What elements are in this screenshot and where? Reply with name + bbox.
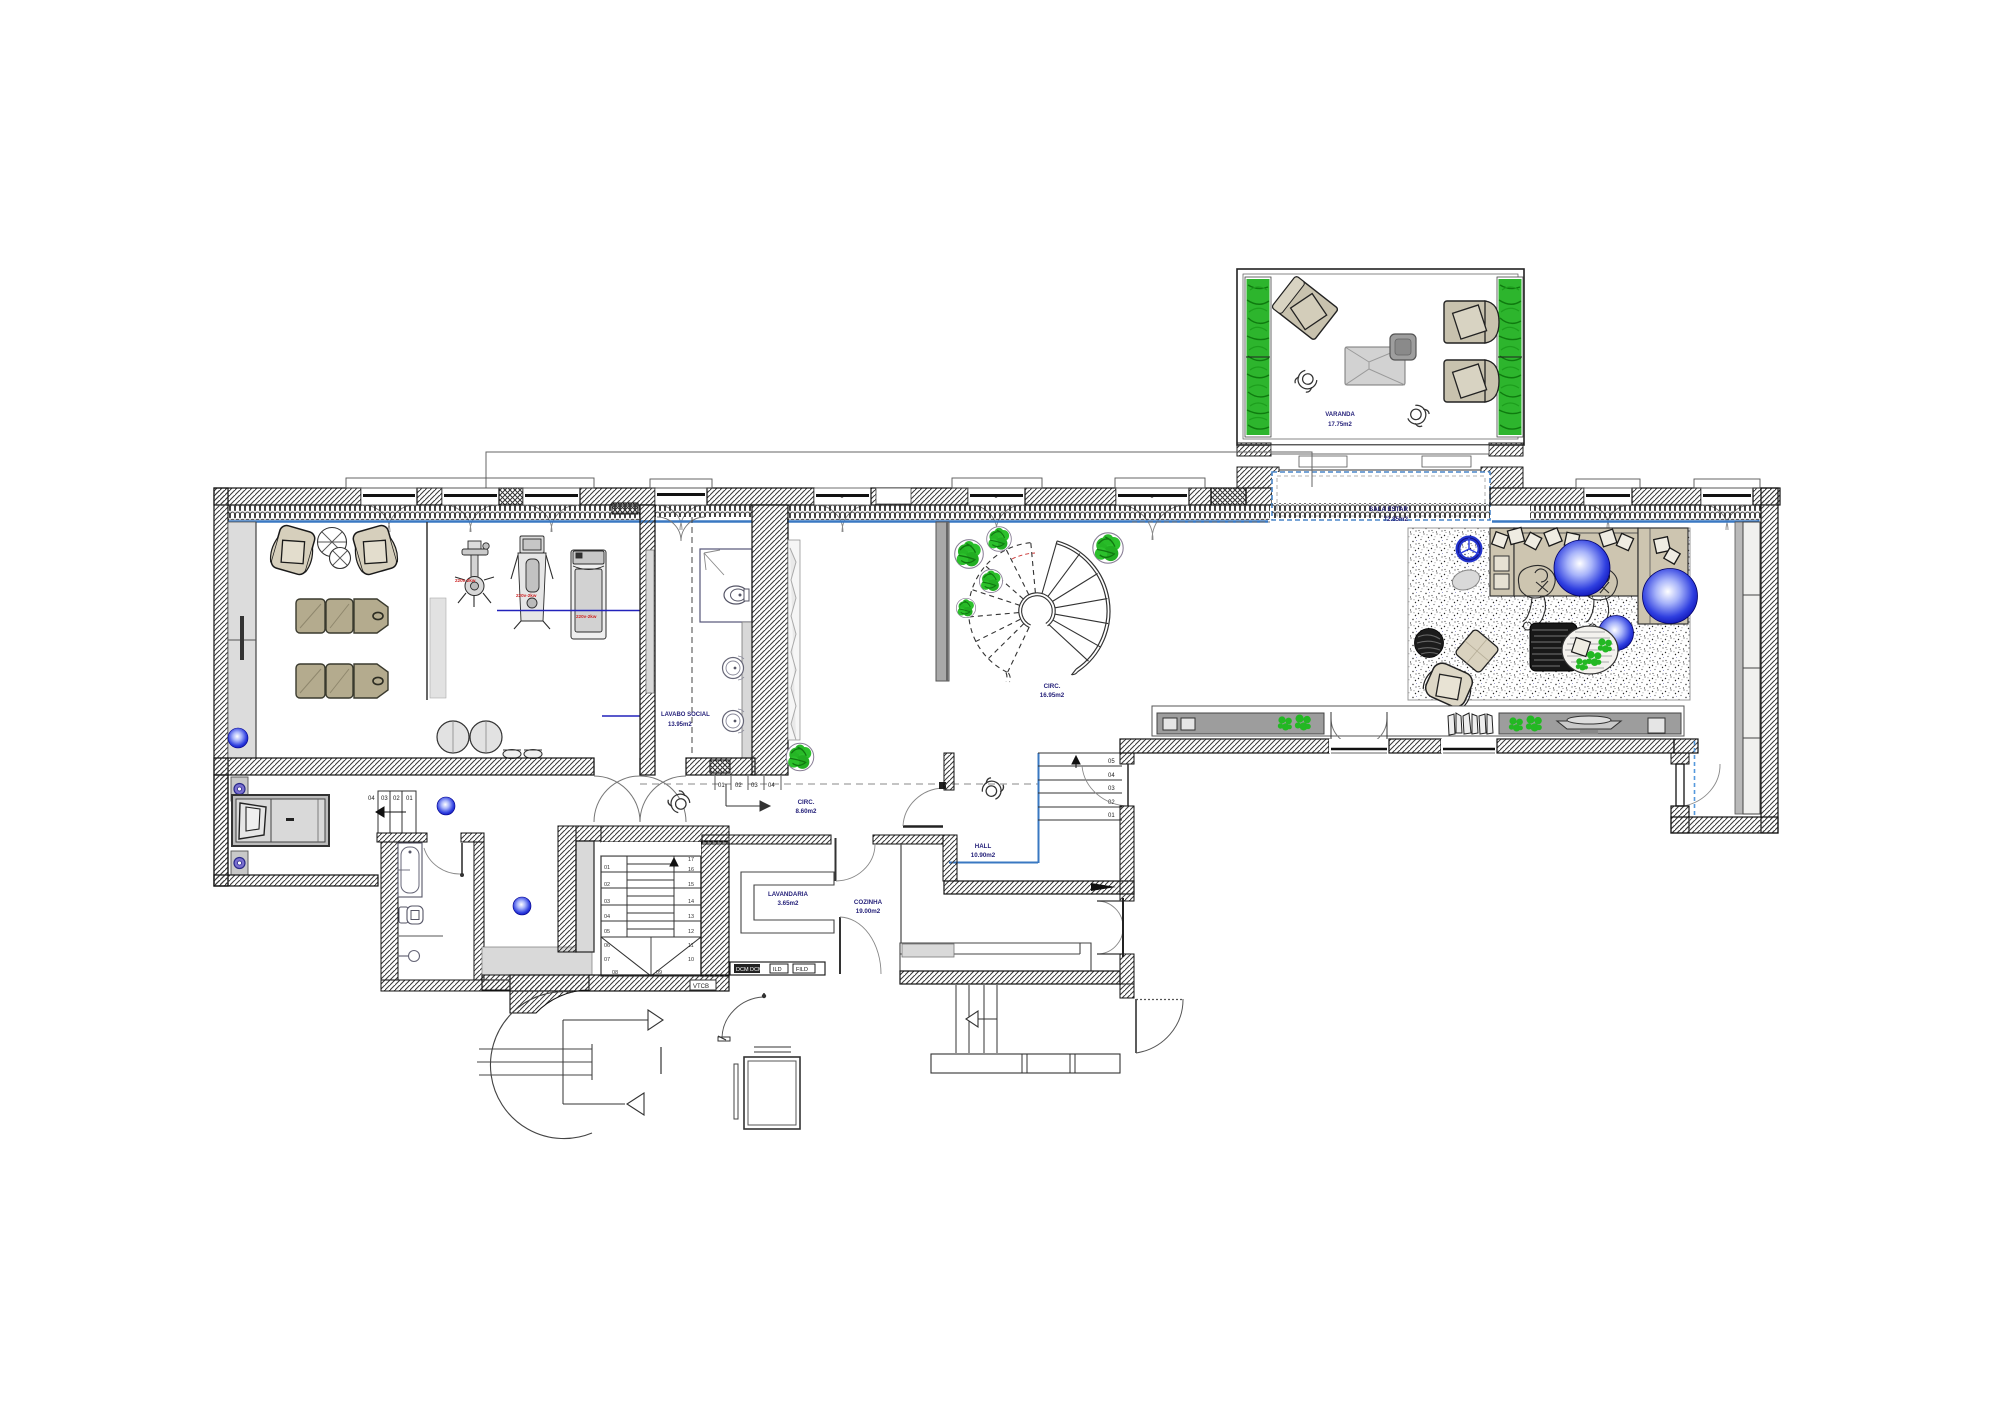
svg-text:04: 04: [604, 914, 610, 920]
svg-text:VARANDA: VARANDA: [1325, 412, 1355, 418]
svg-text:11: 11: [688, 943, 694, 949]
svg-text:FILD: FILD: [796, 967, 808, 973]
svg-text:17.75m2: 17.75m2: [1328, 422, 1352, 428]
svg-text:06: 06: [604, 943, 610, 949]
svg-text:04: 04: [1108, 773, 1115, 779]
svg-text:05: 05: [1108, 759, 1115, 765]
svg-text:04: 04: [368, 796, 375, 802]
svg-text:07: 07: [604, 957, 610, 963]
svg-text:12: 12: [688, 929, 694, 935]
svg-text:01: 01: [1108, 813, 1115, 819]
svg-text:17: 17: [688, 857, 694, 863]
svg-text:03: 03: [751, 783, 758, 789]
svg-text:LAVANDARIA: LAVANDARIA: [768, 891, 809, 898]
svg-text:02: 02: [604, 882, 610, 888]
svg-text:CIRC.: CIRC.: [1044, 683, 1061, 690]
svg-text:04: 04: [768, 783, 775, 789]
svg-text:05: 05: [604, 929, 610, 935]
svg-text:03: 03: [604, 899, 610, 905]
svg-text:01: 01: [406, 796, 413, 802]
svg-text:220v-2kw: 220v-2kw: [576, 614, 597, 619]
svg-text:10: 10: [688, 957, 694, 963]
svg-text:13: 13: [688, 914, 694, 920]
svg-text:01: 01: [604, 865, 610, 871]
svg-text:15: 15: [688, 882, 694, 888]
svg-text:220v-2kw: 220v-2kw: [455, 578, 476, 583]
svg-text:VTCB: VTCB: [693, 984, 709, 990]
svg-text:72.85m2: 72.85m2: [1384, 516, 1409, 523]
svg-text:10.90m2: 10.90m2: [971, 852, 996, 859]
svg-text:03: 03: [1108, 786, 1115, 792]
svg-text:HALL: HALL: [975, 843, 992, 850]
svg-text:02: 02: [393, 796, 400, 802]
svg-text:ILD: ILD: [773, 967, 782, 973]
svg-text:14: 14: [688, 899, 694, 905]
svg-text:DCM DCM: DCM DCM: [736, 967, 763, 973]
svg-text:CIRC.: CIRC.: [798, 799, 815, 806]
svg-text:LAVABO SOCIAL: LAVABO SOCIAL: [661, 712, 710, 718]
svg-text:19.00m2: 19.00m2: [856, 908, 881, 915]
svg-text:13.95m2: 13.95m2: [668, 722, 692, 728]
svg-text:COZINHA: COZINHA: [854, 899, 883, 906]
svg-text:01: 01: [718, 783, 725, 789]
svg-text:02: 02: [735, 783, 742, 789]
svg-text:03: 03: [381, 796, 388, 802]
svg-text:220v-2kw: 220v-2kw: [516, 593, 537, 598]
svg-text:16.95m2: 16.95m2: [1040, 692, 1065, 699]
svg-text:3.65m2: 3.65m2: [778, 900, 800, 907]
svg-text:8.60m2: 8.60m2: [796, 808, 818, 815]
svg-text:16: 16: [688, 867, 694, 873]
svg-text:SALA ESTAR: SALA ESTAR: [1369, 506, 1408, 513]
